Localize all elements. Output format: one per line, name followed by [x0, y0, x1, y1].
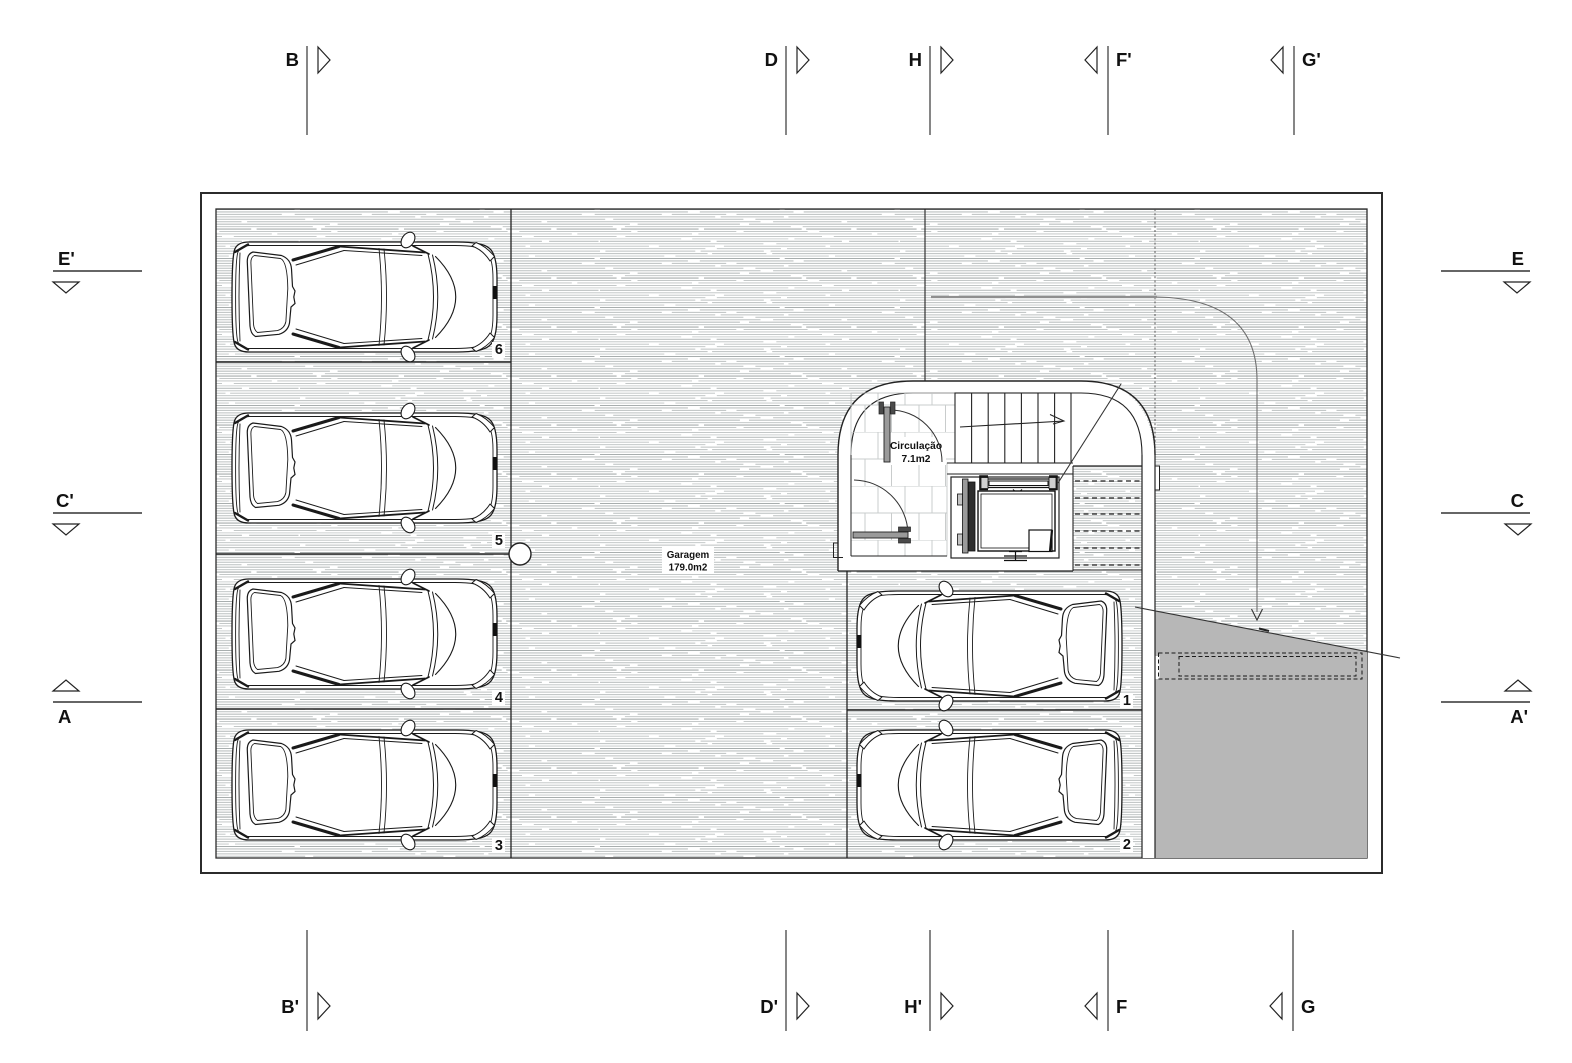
svg-text:179.0m2: 179.0m2 [669, 563, 708, 574]
svg-text:Garagem: Garagem [667, 550, 710, 561]
svg-text:D: D [765, 49, 778, 70]
svg-text:1: 1 [1123, 693, 1131, 709]
svg-text:H': H' [904, 996, 922, 1017]
svg-text:H: H [909, 49, 922, 70]
svg-text:2: 2 [1123, 837, 1131, 853]
svg-text:7.1m2: 7.1m2 [902, 454, 931, 465]
svg-text:F': F' [1116, 49, 1132, 70]
svg-text:D': D' [760, 996, 778, 1017]
svg-text:4: 4 [495, 690, 503, 706]
svg-text:A: A [58, 706, 71, 727]
svg-text:B: B [286, 49, 299, 70]
svg-text:C: C [1511, 490, 1524, 511]
svg-text:E': E' [58, 248, 75, 269]
svg-text:F: F [1116, 996, 1127, 1017]
svg-text:G: G [1301, 996, 1315, 1017]
svg-text:B': B' [281, 996, 299, 1017]
svg-text:3: 3 [495, 838, 503, 854]
svg-text:A': A' [1510, 706, 1528, 727]
svg-text:5: 5 [495, 533, 503, 549]
svg-text:G': G' [1302, 49, 1321, 70]
svg-text:C': C' [56, 490, 74, 511]
svg-text:Circulação: Circulação [890, 441, 942, 452]
svg-text:6: 6 [495, 342, 503, 358]
svg-text:E: E [1512, 248, 1524, 269]
